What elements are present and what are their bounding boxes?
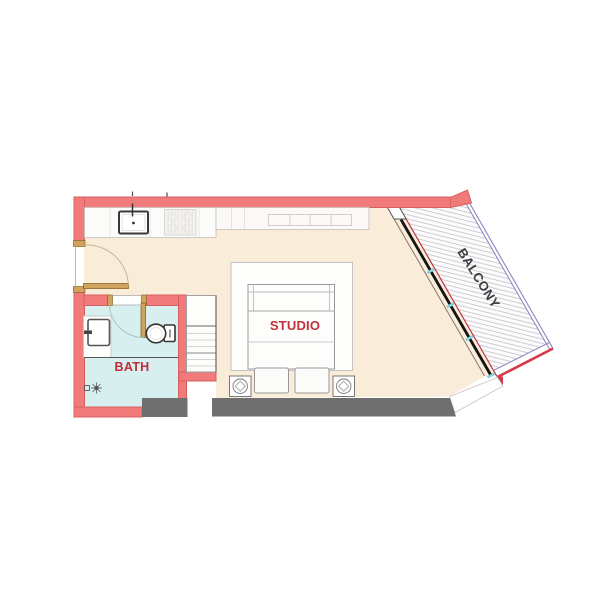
svg-text:BATH: BATH	[115, 360, 150, 374]
svg-text:STUDIO: STUDIO	[270, 318, 320, 333]
